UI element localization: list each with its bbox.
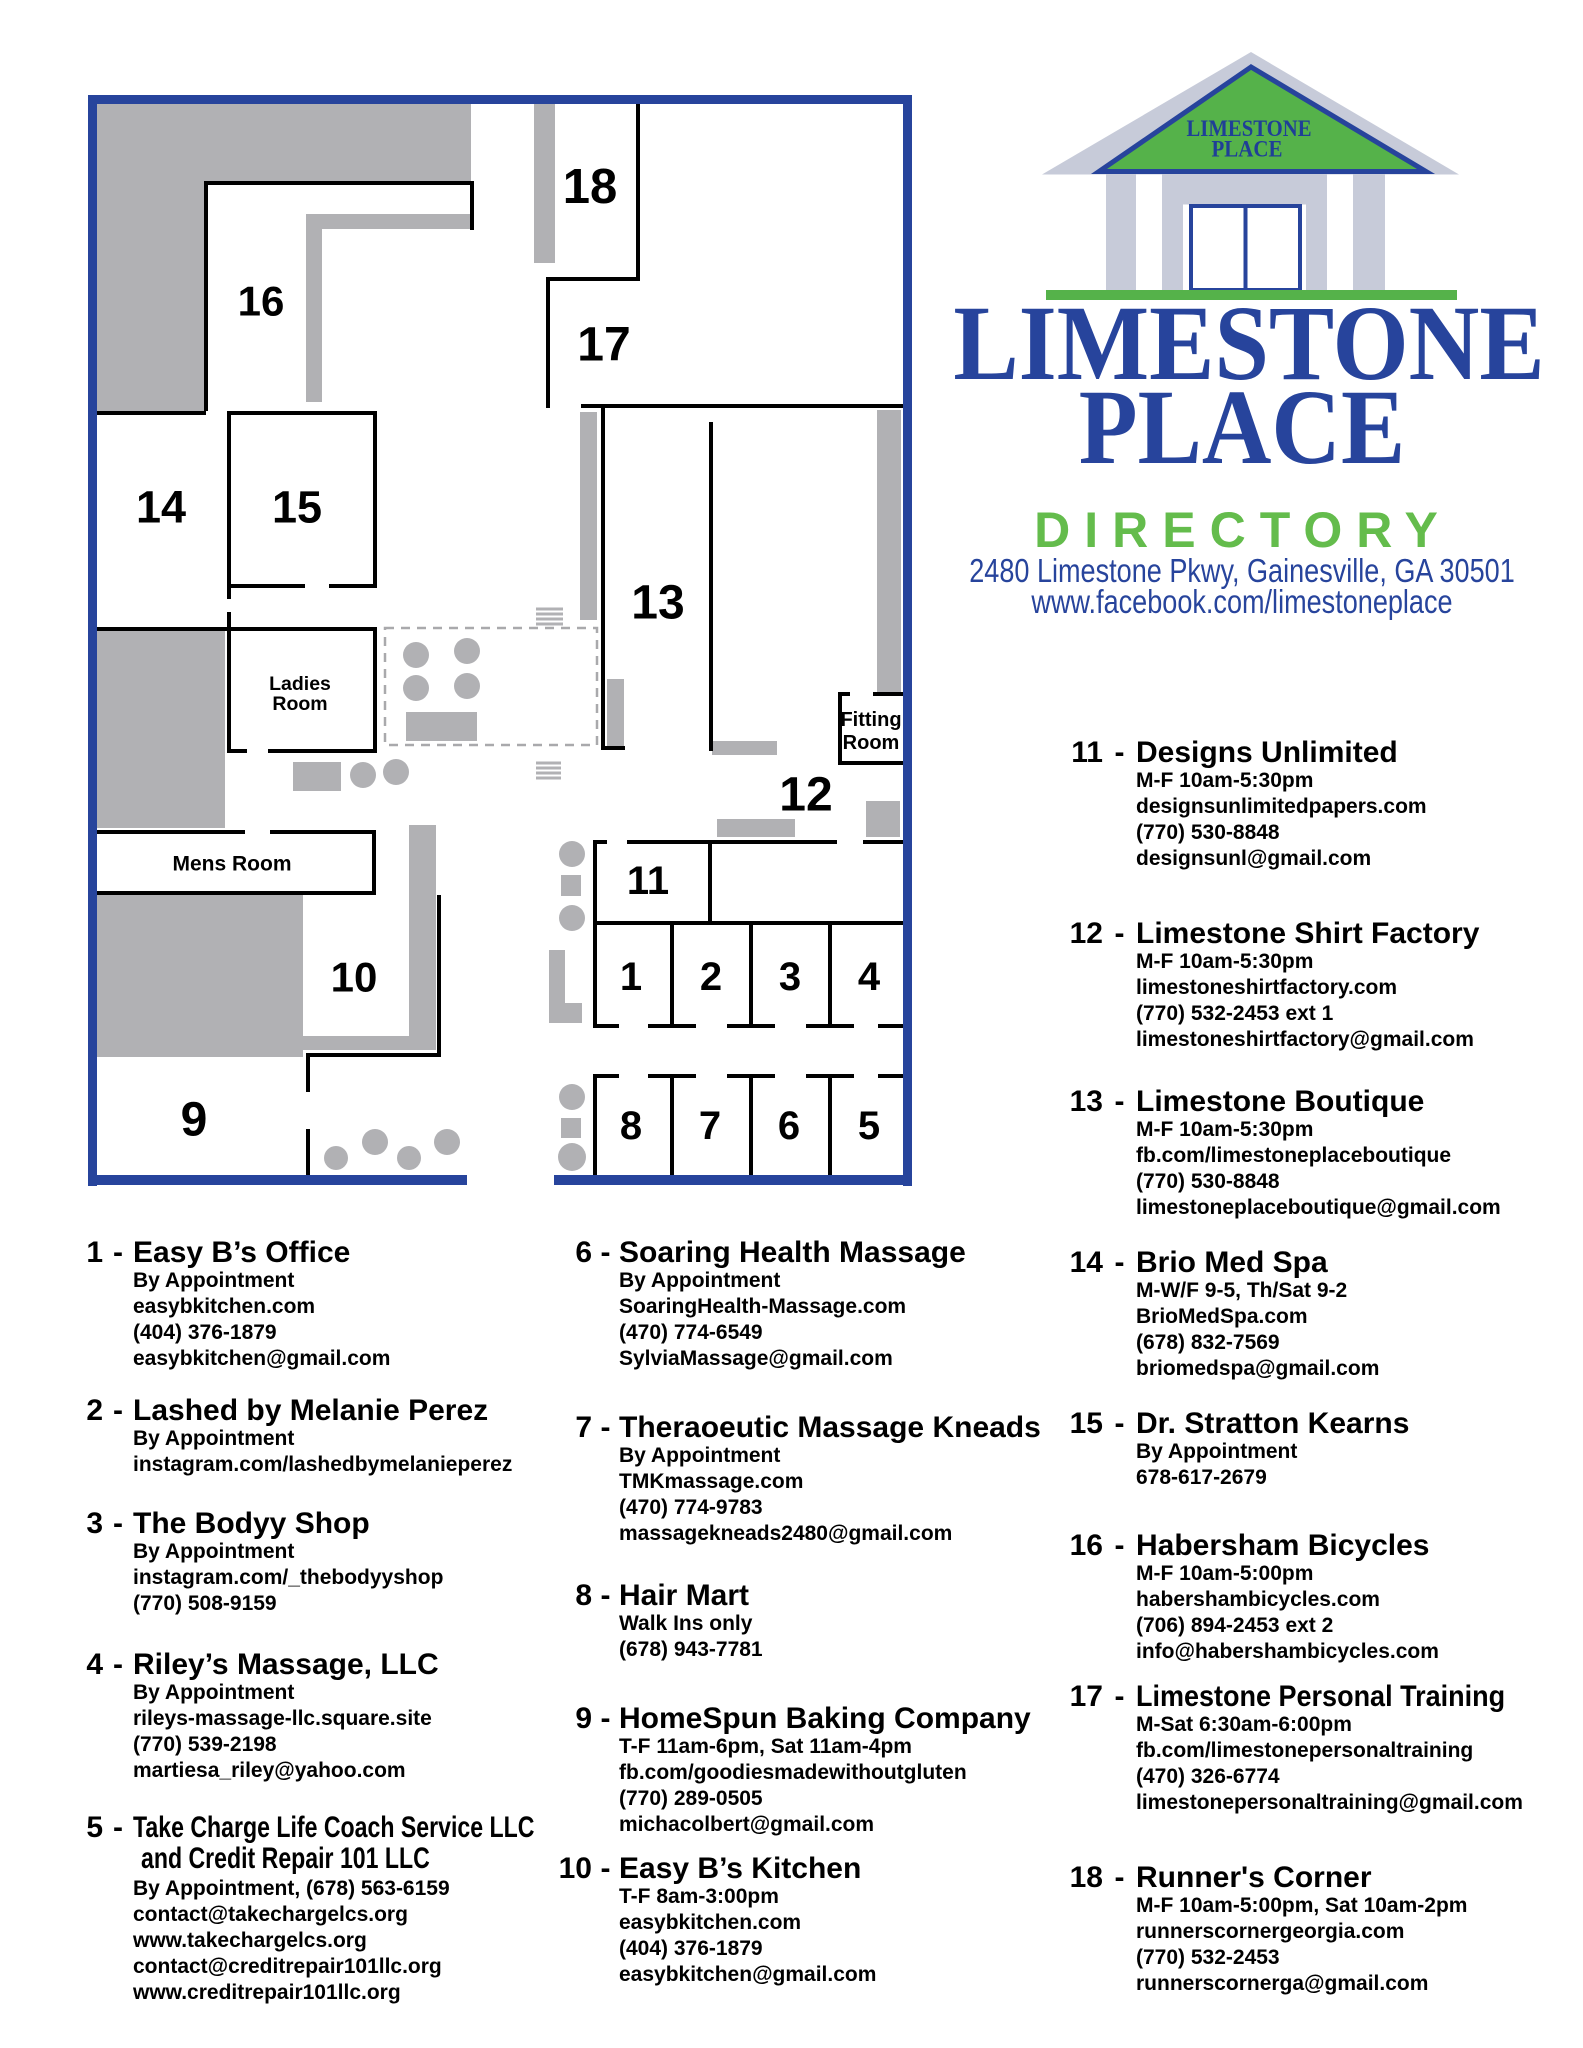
svg-text:Mens Room: Mens Room	[172, 853, 291, 876]
svg-text:15: 15	[272, 482, 322, 533]
svg-text:4: 4	[858, 955, 881, 999]
svg-text:6: 6	[778, 1104, 800, 1148]
svg-text:16: 16	[238, 278, 285, 325]
svg-text:PLACE: PLACE	[1212, 137, 1283, 162]
svg-text:1: 1	[620, 955, 642, 999]
svg-text:11: 11	[627, 859, 669, 903]
svg-text:LadiesRoom: LadiesRoom	[269, 673, 331, 715]
svg-text:7: 7	[699, 1104, 721, 1148]
svg-text:9: 9	[181, 1094, 208, 1147]
svg-text:18: 18	[563, 160, 618, 214]
svg-text:10: 10	[331, 954, 378, 1001]
svg-text:FittingRoom: FittingRoom	[840, 709, 901, 754]
svg-text:2: 2	[700, 955, 722, 999]
svg-text:12: 12	[779, 769, 832, 822]
svg-text:3: 3	[779, 955, 801, 999]
svg-text:14: 14	[136, 482, 186, 533]
svg-text:5: 5	[858, 1104, 880, 1148]
svg-text:8: 8	[620, 1104, 642, 1148]
